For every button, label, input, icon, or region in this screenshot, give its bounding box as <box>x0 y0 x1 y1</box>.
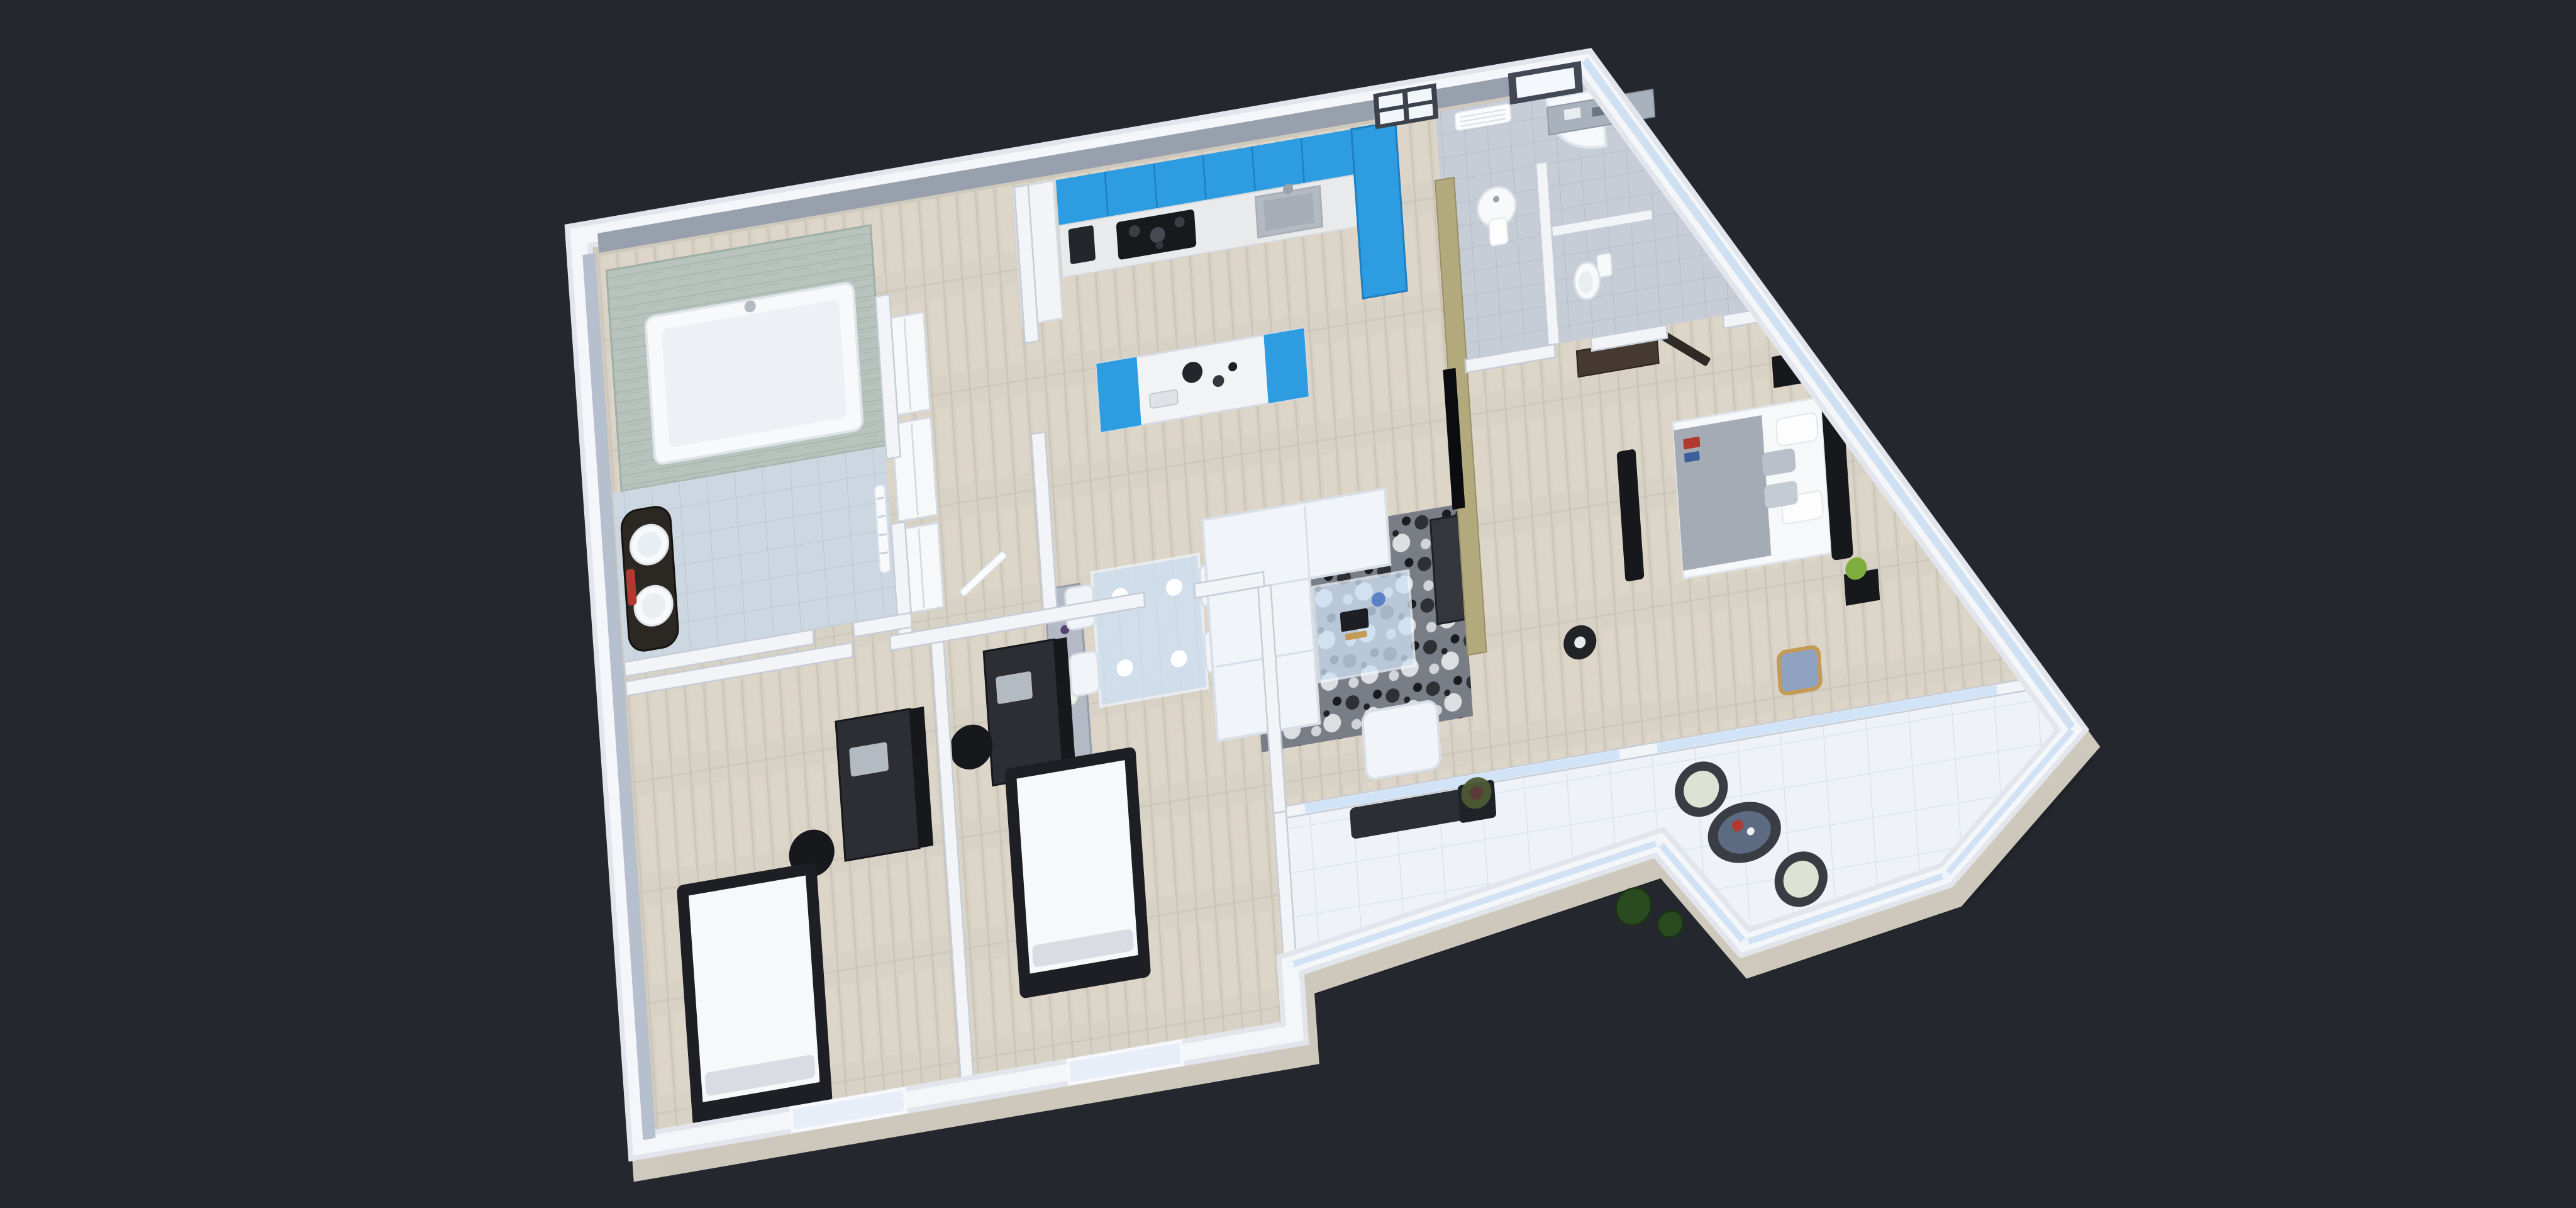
desk-1 <box>836 709 919 861</box>
dining-table <box>1092 554 1208 707</box>
floor-plan-stage <box>0 0 2576 1208</box>
dining-chair-2 <box>1069 651 1100 697</box>
island-base-left <box>1096 357 1141 432</box>
floor-plan-render <box>0 0 2576 1208</box>
accent-chair <box>1778 646 1821 695</box>
coffee-machine <box>1068 225 1096 265</box>
armchair <box>1362 700 1441 781</box>
island-base-right <box>1263 328 1308 403</box>
bathroom-main <box>597 225 897 662</box>
sink-towel <box>1489 217 1508 246</box>
